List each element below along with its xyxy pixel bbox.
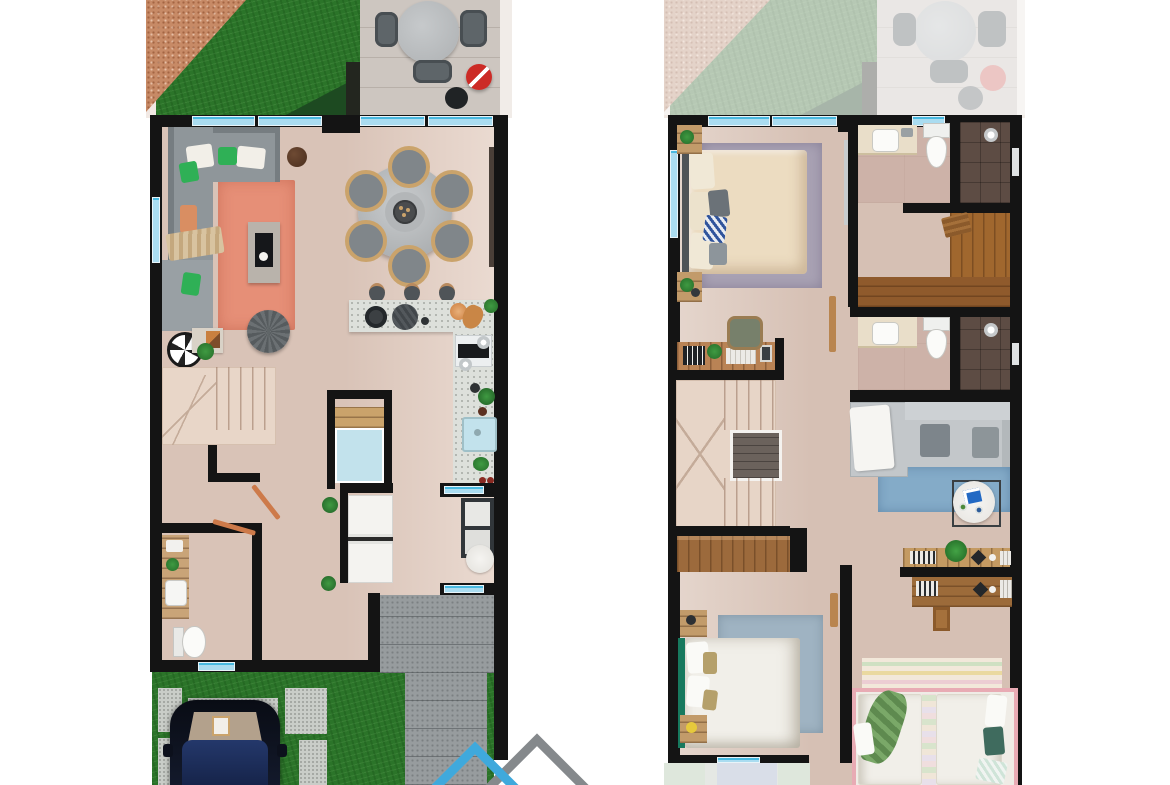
shower-controls xyxy=(1012,343,1019,365)
clock xyxy=(691,288,700,297)
interior-wall xyxy=(848,125,858,307)
winder-steps xyxy=(676,380,724,528)
books xyxy=(1000,580,1012,598)
floor-plan-canvas xyxy=(0,0,1170,785)
towel xyxy=(901,128,913,137)
open-door xyxy=(830,593,838,627)
decor-sphere xyxy=(989,554,996,561)
photo-frame xyxy=(760,345,772,362)
window xyxy=(670,150,678,238)
striped-runner xyxy=(922,694,936,785)
shower-head xyxy=(984,323,998,337)
window xyxy=(708,116,770,126)
khaki-pillow xyxy=(702,689,718,711)
white-blanket xyxy=(849,404,894,471)
decor-sphere xyxy=(989,586,996,593)
open-door xyxy=(829,296,836,352)
small-plate xyxy=(975,506,983,514)
books xyxy=(910,551,936,564)
interior-wall xyxy=(903,203,1022,213)
interior-wall xyxy=(676,526,790,536)
pastel-striped-rug xyxy=(862,658,1002,688)
interior-wall xyxy=(676,370,784,380)
wardrobe xyxy=(677,536,790,572)
gray-pillow xyxy=(709,243,727,265)
decor xyxy=(686,722,697,733)
exterior-wall xyxy=(1010,115,1022,785)
upper-flight xyxy=(724,380,776,430)
interior-wall xyxy=(775,338,784,380)
books xyxy=(683,346,705,365)
books xyxy=(726,348,756,364)
plant xyxy=(707,344,722,359)
ghost-overlay xyxy=(664,0,1025,115)
patterned-pillow xyxy=(702,215,727,244)
teal-cushion xyxy=(983,726,1005,756)
upper-floor-plan xyxy=(0,0,1170,785)
interior-wall xyxy=(900,567,1022,577)
interior-wall xyxy=(850,307,1022,317)
interior-wall xyxy=(790,528,807,572)
window xyxy=(772,116,837,126)
basin xyxy=(872,322,899,345)
desk-chair xyxy=(727,316,763,350)
books xyxy=(1000,551,1011,565)
shower-head xyxy=(984,128,998,142)
lower-flight xyxy=(724,478,776,528)
pillow xyxy=(984,694,1007,728)
basin xyxy=(872,129,899,152)
interior-wall xyxy=(850,390,1022,402)
gray-pillow xyxy=(972,427,999,458)
headboard xyxy=(682,150,689,272)
interior-wall xyxy=(950,123,960,203)
small-plate xyxy=(959,503,967,511)
books xyxy=(916,581,938,596)
gray-pillow xyxy=(920,424,950,457)
gray-pillow xyxy=(708,189,731,218)
interior-wall xyxy=(840,565,852,763)
wardrobe-bank xyxy=(858,277,1010,307)
ghost-overlay xyxy=(664,763,810,785)
khaki-pillow xyxy=(703,652,717,674)
interior-wall xyxy=(950,317,960,390)
pillow xyxy=(689,152,715,190)
clock xyxy=(686,615,696,625)
stairwell-void xyxy=(730,430,782,481)
desk-chair xyxy=(933,607,950,631)
shower-controls xyxy=(1012,148,1019,176)
plant xyxy=(945,540,967,562)
plant xyxy=(680,130,694,144)
